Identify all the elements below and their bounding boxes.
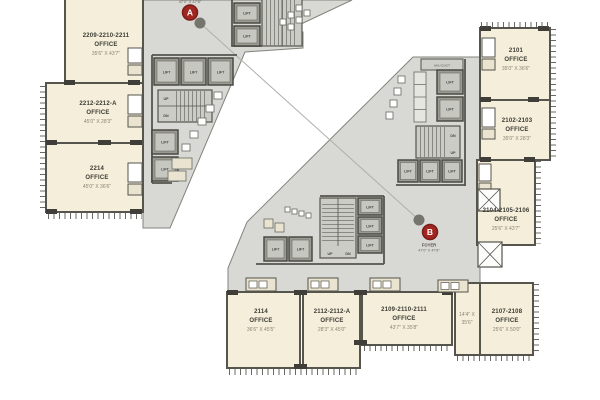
foyer-dims: 47'0" X 47'8" — [418, 249, 440, 253]
office-id: 2209-2210-2211 — [83, 33, 130, 39]
office-type: OFFICE — [94, 42, 117, 48]
column-dot-a — [195, 18, 206, 29]
office-type: OFFICE — [320, 318, 343, 324]
lift-shafts-a-row: LIFT LIFT LIFT — [154, 58, 233, 85]
office-type: OFFICE — [85, 175, 108, 181]
lift-label: LIFT — [366, 244, 374, 248]
marker-a-partial-dims: 47'0" X 47'8" — [179, 0, 202, 4]
office-id: 2104-2105-2106 — [483, 208, 530, 214]
lift-label: LIFT — [297, 248, 305, 252]
office-dims: 45'0" X 28'3" — [84, 119, 112, 125]
ahu-duct-label: AHU DUCT — [434, 64, 450, 68]
office-dims: 35'0" X 28'3" — [503, 136, 531, 142]
lift-label: LIFT — [366, 206, 374, 210]
office-type: OFFICE — [505, 127, 528, 133]
office-type: OFFICE — [495, 318, 518, 324]
lift-label: LIFT — [366, 225, 374, 229]
office-id: 2112-2112-A — [314, 309, 351, 315]
floor-plan-page: LIFT LIFT LIFT LIFT LIFT UP DN — [0, 0, 600, 400]
lift-label: LIFT — [272, 248, 280, 252]
lift-label: LIFT — [243, 35, 251, 39]
room-small-1404 — [455, 283, 480, 355]
office-type: OFFICE — [249, 318, 272, 324]
office-dims: 35'0" X 36'6" — [502, 66, 530, 72]
lift-label: LIFT — [217, 71, 225, 75]
office-id: 2107-2108 — [492, 309, 523, 315]
stairs-dn-label: DN — [163, 114, 169, 118]
lift-label: LIFT — [243, 12, 251, 16]
office-dims: 45'0" X 36'6" — [83, 184, 111, 190]
office-id: 2114 — [254, 309, 268, 315]
lift-label: LIFT — [448, 170, 456, 174]
office-type: OFFICE — [392, 316, 415, 322]
office-type: OFFICE — [504, 57, 527, 63]
lift-label: LIFT — [404, 170, 412, 174]
column-dot-b — [414, 215, 425, 226]
stairs-up-label: UP — [451, 151, 457, 155]
office-id: 2102-2103 — [502, 118, 533, 124]
lift-label: LIFT — [446, 108, 454, 112]
floor-plan-drawing: LIFT LIFT LIFT LIFT LIFT UP DN — [0, 0, 600, 400]
stairs-dn-label: DN — [345, 252, 351, 256]
office-dims: 28'3" X 45'0" — [318, 327, 346, 333]
office-type: OFFICE — [494, 217, 517, 223]
lift-label: LIFT — [426, 170, 434, 174]
office-id: 2109-2110-2111 — [381, 307, 427, 313]
stairs-b-lower: UP DN — [320, 198, 356, 258]
office-dims: 36'6" X 45'5" — [247, 327, 275, 333]
stairs-b-upper: DN UP — [416, 126, 460, 158]
stairs-a-main: UP DN — [158, 90, 212, 122]
office-dims: 35'6" X 43'7" — [92, 51, 120, 57]
lift-shafts-b-column: LIFT LIFT LIFT — [358, 198, 382, 253]
lift-label: LIFT — [446, 81, 454, 85]
marker-b-letter: B — [427, 227, 433, 237]
stairs-up-label: UP — [328, 252, 334, 256]
lift-shafts-b-row: LIFT LIFT LIFT — [398, 160, 462, 182]
office-type: OFFICE — [86, 110, 109, 116]
small-room-dims-2: 35'6" — [461, 320, 472, 326]
stairs-dn-label: DN — [450, 134, 456, 138]
marker-a-letter: A — [187, 8, 193, 18]
office-dims: 25'6" X 50'0" — [493, 327, 521, 333]
office-dims: 25'6" X 43'7" — [492, 226, 520, 232]
stairs-up-label: UP — [164, 97, 170, 101]
office-dims: 43'7" X 35'8" — [390, 325, 418, 331]
lift-label: LIFT — [161, 141, 169, 145]
lift-label: LIFT — [190, 71, 198, 75]
office-id: 2101 — [509, 48, 524, 54]
office-id: 2212-2212-A — [79, 101, 117, 107]
lift-label: LIFT — [163, 71, 171, 75]
office-id: 2214 — [90, 166, 105, 172]
small-room-dims-1: 14'4" X — [459, 312, 475, 318]
foyer-label: FOYER — [422, 243, 436, 248]
